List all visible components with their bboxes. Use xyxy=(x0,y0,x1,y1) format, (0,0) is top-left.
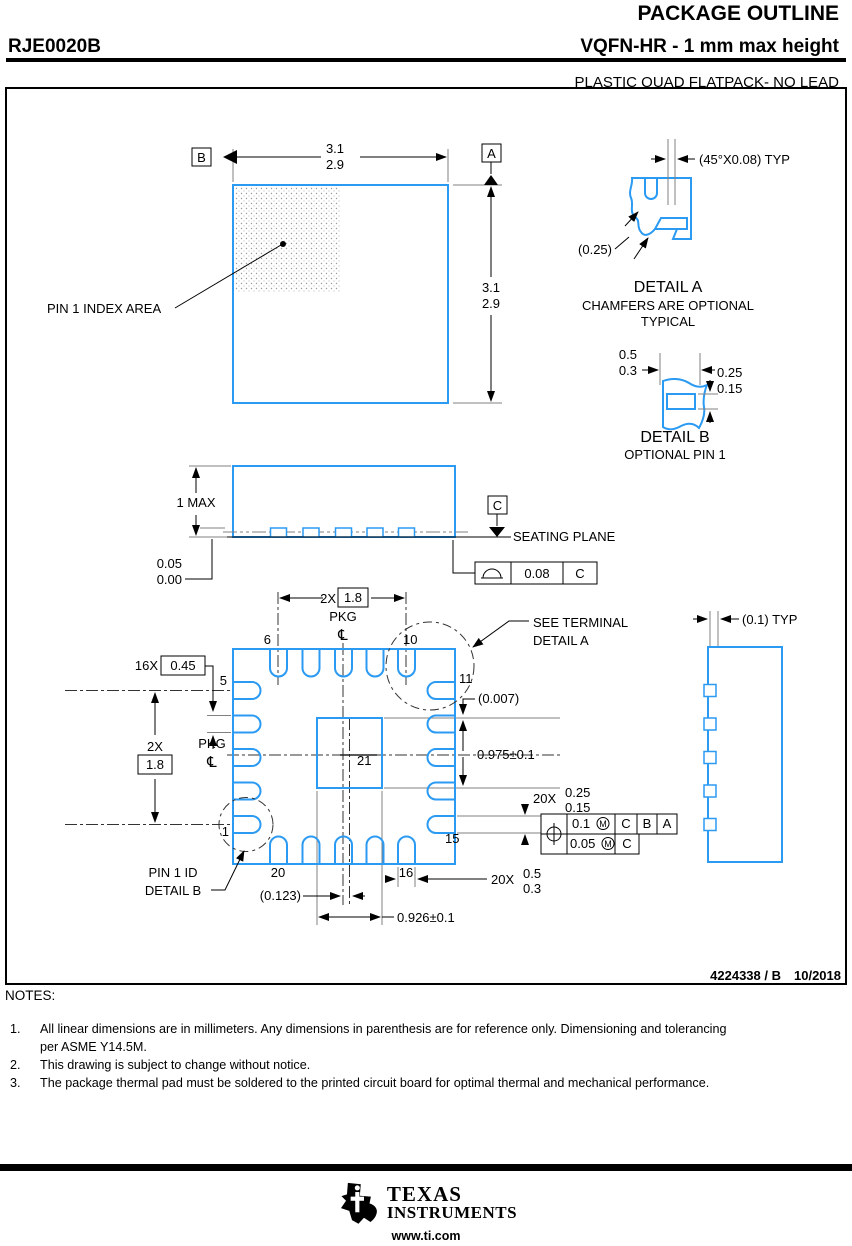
fcf-m1: M xyxy=(599,819,607,829)
package-type: VQFN-HR - 1 mm max height xyxy=(580,36,839,58)
lead-bottom-max: 0.5 xyxy=(523,866,541,881)
detail-b-title: DETAIL B xyxy=(640,429,709,446)
flatness-datum: C xyxy=(575,566,584,581)
fcf-datum-c: C xyxy=(621,816,630,831)
detail-b-height-max: 0.25 xyxy=(717,365,742,380)
pin-number-10: 10 xyxy=(403,632,417,647)
see-terminal-line1: SEE TERMINAL xyxy=(533,615,628,630)
datum-a-label: A xyxy=(487,146,496,161)
left-pitch-value: 1.8 xyxy=(146,757,164,772)
datum-c-label: C xyxy=(493,498,502,513)
ti-logo: TEXAS INSTRUMENTS xyxy=(0,1180,852,1228)
pin1-index-area xyxy=(235,187,341,293)
detail-b-width-max: 0.5 xyxy=(619,347,637,362)
footer-rule xyxy=(0,1164,852,1171)
fcf-datum-a: A xyxy=(663,816,672,831)
pkg-label-top: PKG xyxy=(329,609,356,624)
top-pitch-value: 1.8 xyxy=(344,590,362,605)
lead-right-max: 0.25 xyxy=(565,785,590,800)
pkg-label-left: PKG xyxy=(198,736,225,751)
fcf-datum-b: B xyxy=(643,816,652,831)
pin1-index-dot xyxy=(280,241,286,247)
lead-width-value: 0.45 xyxy=(170,658,195,673)
fcf-m2: M xyxy=(604,839,612,849)
body-width-min: 2.9 xyxy=(326,157,344,172)
notes-label: NOTES: xyxy=(5,988,55,1003)
package-body-side xyxy=(233,466,455,537)
detail-b-note: OPTIONAL PIN 1 xyxy=(624,447,725,462)
lead-bottom-min: 0.3 xyxy=(523,881,541,896)
pin-number-15: 15 xyxy=(445,831,459,846)
height-dim: 1 MAX xyxy=(176,495,215,510)
standoff-min: 0.00 xyxy=(157,572,182,587)
ti-brand-line2: INSTRUMENTS xyxy=(387,1204,517,1222)
page-title: PACKAGE OUTLINE xyxy=(638,2,839,26)
right-side-view: (0.1) TYP xyxy=(693,611,797,862)
fcf-tolerance-2: 0.05 xyxy=(570,836,595,851)
ti-wordmark: TEXAS INSTRUMENTS xyxy=(387,1180,517,1222)
pad-length-dim: 0.975±0.1 xyxy=(477,747,535,762)
pin-number-1: 1 xyxy=(222,824,229,839)
drawing-date: 10/2018 xyxy=(794,968,841,983)
pin1-id-line1: PIN 1 ID xyxy=(148,865,197,880)
note-number: 3. xyxy=(10,1074,40,1092)
detail-b-height-min: 0.15 xyxy=(717,381,742,396)
note-3-line1: The package thermal pad must be soldered… xyxy=(40,1074,820,1092)
pin1-id-line2: DETAIL B xyxy=(145,883,201,898)
page: PACKAGE OUTLINE RJE0020B VQFN-HR - 1 mm … xyxy=(0,0,852,1246)
pin-number-6: 6 xyxy=(264,632,271,647)
note-number: 1. xyxy=(10,1020,40,1056)
detail-a-title: DETAIL A xyxy=(634,279,703,296)
note-item-1: 1. All linear dimensions are in millimet… xyxy=(10,1020,820,1056)
lead-thickness-dim: (0.1) TYP xyxy=(742,612,797,627)
lead-width-mult: 16X xyxy=(135,658,158,673)
lead-bottom-mult: 20X xyxy=(491,872,514,887)
datum-b-label: B xyxy=(197,150,206,165)
note-number: 2. xyxy=(10,1056,40,1074)
top-pitch-mult: 2X xyxy=(320,591,336,606)
seating-plane-label: SEATING PLANE xyxy=(513,529,616,544)
pin-number-16: 16 xyxy=(399,865,413,880)
lead-right-min: 0.15 xyxy=(565,800,590,815)
note-1-line2: per ASME Y14.5M. xyxy=(40,1038,820,1056)
fcf-tolerance-1: 0.1 xyxy=(572,816,590,831)
pad-width-dim: 0.926±0.1 xyxy=(397,910,455,925)
pin-number-20: 20 xyxy=(271,865,285,880)
detail-a-note2: TYPICAL xyxy=(641,314,695,329)
ref-offset-dim: (0.007) xyxy=(478,691,519,706)
thermal-pad-number: 21 xyxy=(357,753,371,768)
detail-b-width-min: 0.3 xyxy=(619,363,637,378)
header-rule xyxy=(6,58,846,62)
note-1-line1: All linear dimensions are in millimeters… xyxy=(40,1020,820,1038)
texas-state-icon xyxy=(335,1180,381,1228)
flatness-value: 0.08 xyxy=(524,566,549,581)
part-number: RJE0020B xyxy=(8,36,101,58)
pin-number-11: 11 xyxy=(459,671,473,686)
package-outline-drawing: B 3.1 2.9 A 3.1 2.9 PIN 1 INDEX AREA (45… xyxy=(5,87,847,985)
detail-a-note1: CHAMFERS ARE OPTIONAL xyxy=(582,298,754,313)
chamfer-dim: (45°X0.08) TYP xyxy=(699,152,790,167)
ref-dim-025: (0.25) xyxy=(578,242,612,257)
standoff-max: 0.05 xyxy=(157,556,182,571)
body-height-min: 2.9 xyxy=(482,296,500,311)
ti-brand-line1: TEXAS xyxy=(387,1184,517,1204)
ti-url: www.ti.com xyxy=(0,1229,852,1243)
drawing-number: 4224338 / B xyxy=(710,968,781,983)
centerline-symbol-top: ℄ xyxy=(337,627,348,644)
pin1-index-label: PIN 1 INDEX AREA xyxy=(47,301,161,316)
notes-list: 1. All linear dimensions are in millimet… xyxy=(10,1020,820,1092)
ref-center-dim: (0.123) xyxy=(260,888,301,903)
note-2-line1: This drawing is subject to change withou… xyxy=(40,1056,820,1074)
package-body-right xyxy=(708,647,782,862)
fcf-datum-c2: C xyxy=(622,836,631,851)
left-pitch-mult: 2X xyxy=(147,739,163,754)
body-height-max: 3.1 xyxy=(482,280,500,295)
note-item-2: 2. This drawing is subject to change wit… xyxy=(10,1056,820,1074)
pin-number-5: 5 xyxy=(220,673,227,688)
centerline-symbol-left: ℄ xyxy=(206,754,217,771)
lead-right-mult: 20X xyxy=(533,791,556,806)
note-item-3: 3. The package thermal pad must be solde… xyxy=(10,1074,820,1092)
note-text: All linear dimensions are in millimeters… xyxy=(40,1020,820,1056)
see-terminal-line2: DETAIL A xyxy=(533,633,589,648)
body-width-max: 3.1 xyxy=(326,141,344,156)
